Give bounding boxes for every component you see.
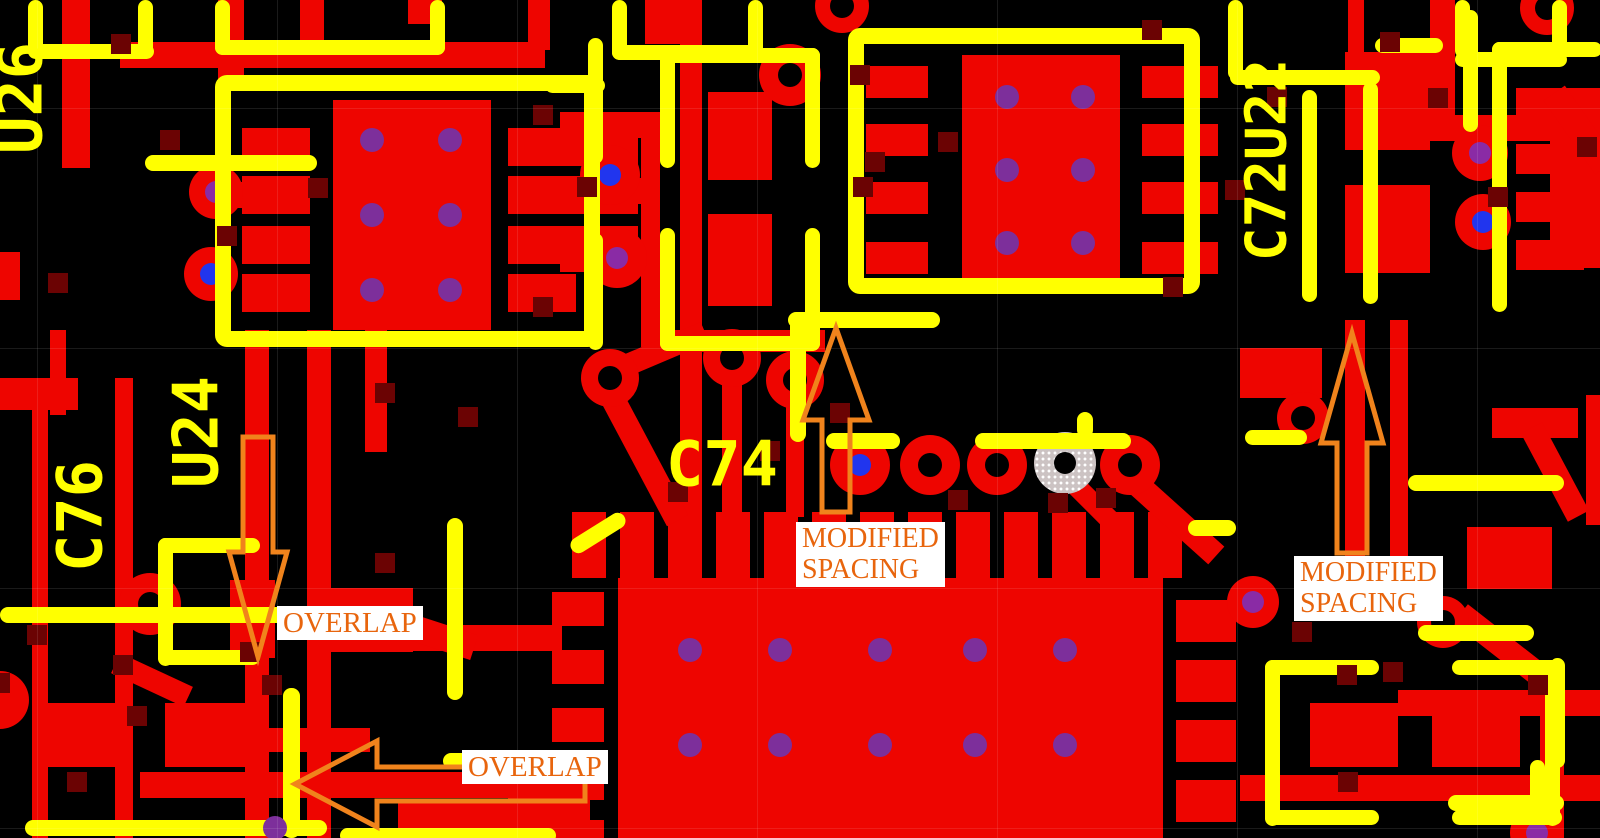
pad-hole <box>849 454 871 476</box>
grid-line <box>1477 0 1478 838</box>
refdes-label-u24[interactable]: U24 <box>160 376 233 488</box>
copper-shape[interactable] <box>956 512 990 578</box>
copper-shape[interactable] <box>0 252 20 300</box>
copper-shape[interactable] <box>1176 660 1236 702</box>
silkscreen-segment[interactable] <box>1265 660 1379 675</box>
annotation-text: OVERLAP <box>468 751 602 783</box>
copper-shape[interactable] <box>1390 320 1408 568</box>
copper-shape[interactable] <box>165 703 251 767</box>
via-square[interactable] <box>0 673 10 693</box>
copper-shape[interactable] <box>708 92 772 180</box>
copper-shape[interactable] <box>1052 512 1086 578</box>
pcb-layout-canvas[interactable]: U26C76U24C74C72U22OVERLAPOVERLAPMODIFIED… <box>0 0 1600 838</box>
thermal-via-dot <box>360 128 384 152</box>
via-square[interactable] <box>160 130 180 150</box>
via-square[interactable] <box>375 383 395 403</box>
silkscreen-segment[interactable] <box>1492 42 1507 312</box>
via-square[interactable] <box>111 34 131 54</box>
annotation-text: MODIFIED <box>802 523 939 554</box>
copper-shape[interactable] <box>62 0 90 168</box>
thermal-via-dot <box>1071 158 1095 182</box>
silkscreen-segment[interactable] <box>1245 430 1307 445</box>
thermal-via-dot <box>1053 733 1077 757</box>
copper-shape[interactable] <box>45 703 131 767</box>
silkscreen-segment[interactable] <box>1452 660 1562 675</box>
copper-shape[interactable] <box>1176 780 1236 822</box>
copper-shape[interactable] <box>1345 185 1430 273</box>
thermal-via-dot <box>963 638 987 662</box>
copper-shape[interactable] <box>50 330 66 415</box>
via-square[interactable] <box>1292 622 1312 642</box>
copper-shape[interactable] <box>1586 395 1600 525</box>
silkscreen-segment[interactable] <box>215 40 445 55</box>
copper-shape[interactable] <box>552 708 604 742</box>
via-square[interactable] <box>830 403 850 423</box>
modified-spacing-label-1[interactable]: MODIFIEDSPACING <box>796 522 945 587</box>
overlap-label-1[interactable]: OVERLAP <box>277 606 423 640</box>
thermal-via-dot <box>438 203 462 227</box>
silkscreen-segment[interactable] <box>790 318 806 442</box>
pad-hole <box>1469 142 1491 164</box>
thermal-via-dot <box>360 203 384 227</box>
silkscreen-segment[interactable] <box>805 228 820 351</box>
grid-line <box>997 0 998 838</box>
pad-hole <box>599 164 621 186</box>
thermal-via-dot <box>360 278 384 302</box>
component-outline[interactable] <box>848 28 1200 294</box>
thermal-via-dot <box>768 733 792 757</box>
thermal-via-dot <box>868 638 892 662</box>
silkscreen-segment[interactable] <box>447 518 463 700</box>
silkscreen-segment[interactable] <box>1188 520 1236 536</box>
annotation-text: OVERLAP <box>283 607 417 639</box>
via-square[interactable] <box>850 65 870 85</box>
via-square[interactable] <box>113 655 133 675</box>
pad-hole <box>598 366 622 390</box>
silkscreen-segment[interactable] <box>975 433 1131 449</box>
silkscreen-segment[interactable] <box>660 228 675 351</box>
silkscreen-segment[interactable] <box>1550 658 1565 768</box>
silkscreen-segment[interactable] <box>1408 475 1564 491</box>
thermal-via-dot <box>995 158 1019 182</box>
copper-shape[interactable] <box>1345 320 1365 568</box>
via-square[interactable] <box>217 226 237 246</box>
copper-shape[interactable] <box>528 0 550 50</box>
copper-shape[interactable] <box>1398 690 1600 716</box>
silkscreen-segment[interactable] <box>1463 10 1478 132</box>
thermal-via-dot <box>995 85 1019 109</box>
copper-shape[interactable] <box>1310 703 1398 767</box>
via-square[interactable] <box>48 273 68 293</box>
via-square[interactable] <box>1528 675 1548 695</box>
via-square[interactable] <box>1337 665 1357 685</box>
via-square[interactable] <box>1142 20 1162 40</box>
silkscreen-segment[interactable] <box>340 828 556 838</box>
refdes-label-c72u22[interactable]: C72U22 <box>1235 59 1300 261</box>
silkscreen-segment[interactable] <box>158 538 260 553</box>
copper-shape[interactable] <box>255 728 370 752</box>
grid-line <box>517 0 518 838</box>
thermal-via-dot <box>1071 231 1095 255</box>
via-square[interactable] <box>853 177 873 197</box>
silkscreen-segment[interactable] <box>1077 412 1093 438</box>
silkscreen-segment[interactable] <box>1363 82 1378 304</box>
thermal-via-dot <box>263 816 287 838</box>
copper-shape[interactable] <box>716 512 750 578</box>
copper-shape[interactable] <box>1004 512 1038 578</box>
via-square[interactable] <box>865 152 885 172</box>
via-square[interactable] <box>1428 88 1448 108</box>
refdes-label-c76[interactable]: C76 <box>44 460 117 572</box>
via-square[interactable] <box>67 772 87 792</box>
silkscreen-segment[interactable] <box>788 312 940 328</box>
thermal-via-dot <box>438 278 462 302</box>
modified-spacing-label-2[interactable]: MODIFIEDSPACING <box>1294 556 1443 621</box>
pad-hole <box>1118 453 1142 477</box>
thermal-via-dot <box>995 231 1019 255</box>
copper-shape[interactable] <box>552 592 604 626</box>
refdes-label-c74[interactable]: C74 <box>666 428 778 501</box>
copper-shape[interactable] <box>0 378 78 410</box>
copper-shape[interactable] <box>708 214 772 306</box>
via-square[interactable] <box>1577 137 1597 157</box>
via-square[interactable] <box>458 407 478 427</box>
grid-line <box>0 828 1600 829</box>
copper-shape[interactable] <box>1348 0 1364 52</box>
thermal-via-dot <box>678 638 702 662</box>
via-square[interactable] <box>1380 32 1400 52</box>
pad-hole <box>1472 211 1494 233</box>
thermal-via-dot <box>963 733 987 757</box>
via-square[interactable] <box>577 177 597 197</box>
silkscreen-segment[interactable] <box>1265 660 1280 826</box>
silkscreen-segment[interactable] <box>283 688 300 838</box>
thermal-via-dot <box>678 733 702 757</box>
silkscreen-segment[interactable] <box>1452 810 1562 825</box>
via-square[interactable] <box>1096 488 1116 508</box>
silkscreen-segment[interactable] <box>158 538 173 666</box>
refdes-label-u26[interactable]: U26 <box>0 42 57 154</box>
pad-hole <box>1242 591 1264 613</box>
silkscreen-segment[interactable] <box>826 433 900 449</box>
thermal-via-dot <box>438 128 462 152</box>
annotation-text: SPACING <box>802 554 939 585</box>
silkscreen-segment[interactable] <box>660 48 820 63</box>
via-square[interactable] <box>127 706 147 726</box>
annotation-text: SPACING <box>1300 588 1437 619</box>
copper-shape[interactable] <box>618 578 1163 838</box>
silkscreen-segment[interactable] <box>1265 810 1379 825</box>
grid-line <box>757 0 758 838</box>
silkscreen-segment[interactable] <box>1492 42 1600 57</box>
pad-hole <box>918 453 942 477</box>
copper-shape[interactable] <box>764 512 798 578</box>
overlap-label-2[interactable]: OVERLAP <box>462 750 608 784</box>
thermal-via-dot <box>768 638 792 662</box>
grid-line <box>0 348 1600 349</box>
silkscreen-segment[interactable] <box>1302 90 1317 302</box>
via-square[interactable] <box>375 553 395 573</box>
copper-shape[interactable] <box>1467 527 1552 589</box>
via-square[interactable] <box>1048 493 1068 513</box>
copper-shape[interactable] <box>1176 720 1236 762</box>
grid-line <box>0 108 1600 109</box>
via-square[interactable] <box>262 675 282 695</box>
via-square[interactable] <box>1163 277 1183 297</box>
thermal-via-dot <box>868 733 892 757</box>
copper-shape[interactable] <box>307 330 331 838</box>
thermal-via-dot <box>1053 638 1077 662</box>
pad-hole <box>778 63 802 87</box>
copper-shape[interactable] <box>552 650 604 684</box>
via-square[interactable] <box>938 132 958 152</box>
via-square[interactable] <box>1488 187 1508 207</box>
grid-line <box>277 0 278 838</box>
silkscreen-segment[interactable] <box>1448 795 1564 811</box>
via-square[interactable] <box>1338 772 1358 792</box>
via-square[interactable] <box>240 642 260 662</box>
annotation-text: MODIFIED <box>1300 557 1437 588</box>
via-square[interactable] <box>1383 662 1403 682</box>
via-square[interactable] <box>948 490 968 510</box>
pad-hole <box>1291 406 1315 430</box>
copper-shape[interactable] <box>641 112 660 347</box>
via-square[interactable] <box>533 297 553 317</box>
via-square[interactable] <box>308 178 328 198</box>
copper-shape[interactable] <box>1240 348 1322 398</box>
silkscreen-segment[interactable] <box>1418 625 1534 641</box>
pad-hole <box>606 247 628 269</box>
pad-hole <box>1054 452 1076 474</box>
thermal-via-dot <box>1071 85 1095 109</box>
